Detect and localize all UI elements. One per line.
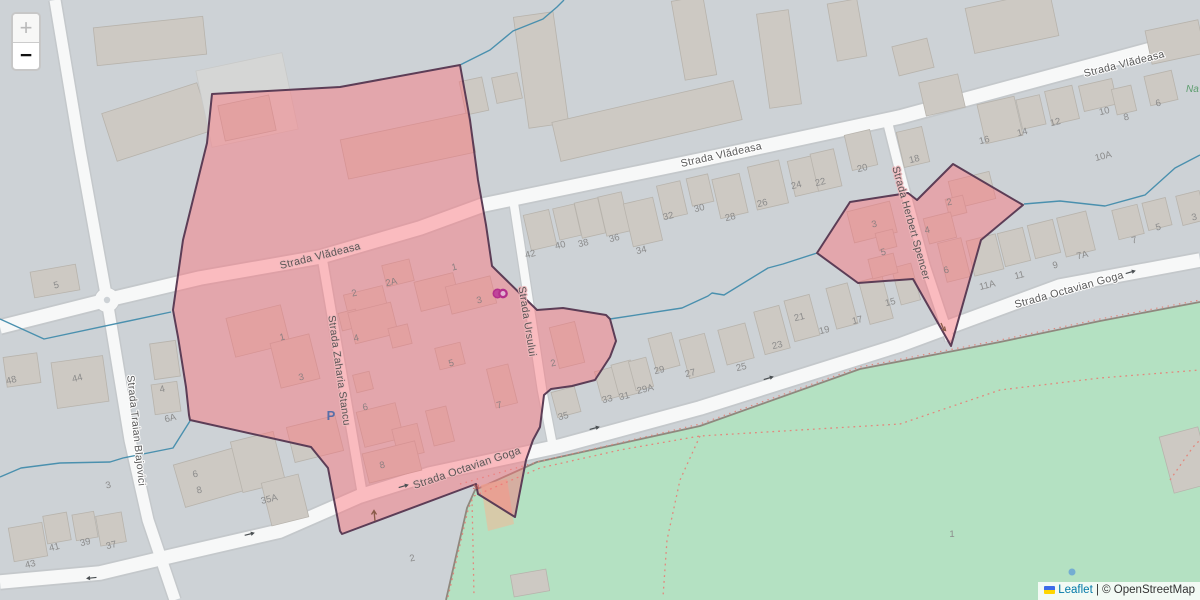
svg-text:1: 1 [949,529,954,540]
svg-text:Na: Na [1186,84,1199,95]
svg-text:P: P [327,408,336,423]
svg-text:38: 38 [473,485,480,491]
